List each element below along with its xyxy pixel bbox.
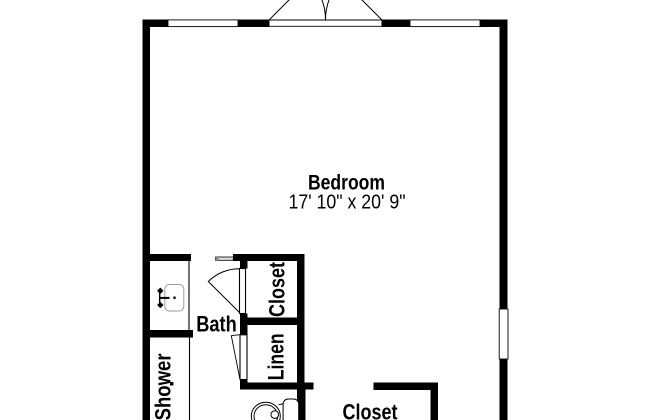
svg-text:Linen: Linen <box>263 333 288 380</box>
svg-text:Closet: Closet <box>343 400 399 420</box>
svg-text:17' 10" x 20' 9": 17' 10" x 20' 9" <box>289 191 406 213</box>
svg-text:Shower: Shower <box>150 353 175 420</box>
svg-text:Bath: Bath <box>196 312 237 337</box>
svg-text:Closet: Closet <box>264 261 289 317</box>
